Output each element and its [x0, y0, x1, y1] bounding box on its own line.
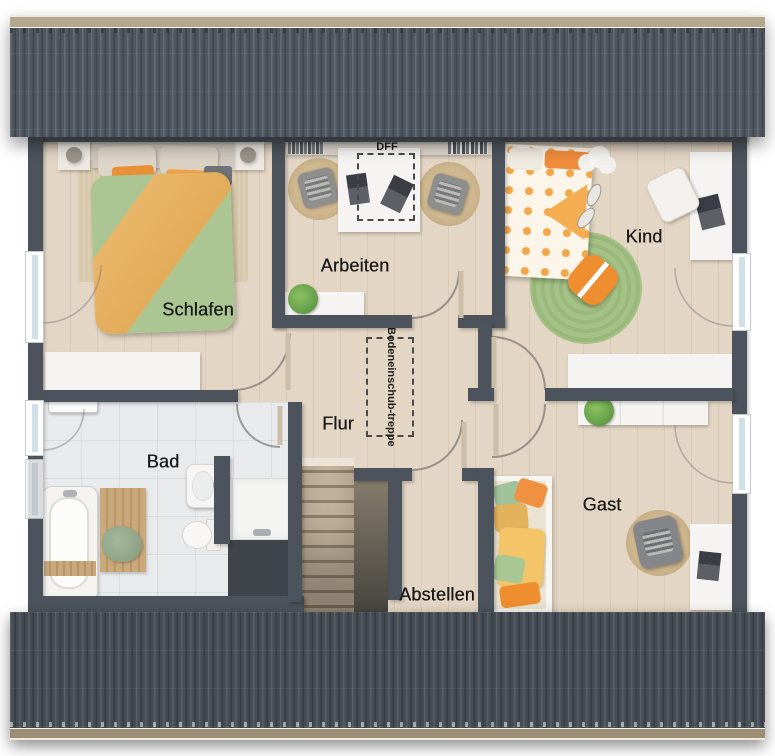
wall-kind-bottom-left: [468, 388, 494, 401]
roof-top: [10, 15, 765, 137]
toilet-bowl: [182, 521, 212, 549]
staircase: [302, 458, 354, 612]
roof-window-label: DFF: [363, 141, 411, 153]
attic-stair-label-line1: Bodeneinschub-: [383, 327, 397, 413]
plant: [288, 284, 318, 314]
guest-desk: [690, 524, 734, 610]
roof-gutter: [10, 728, 765, 740]
lamp-left: [66, 147, 82, 163]
exterior-wall-left: [28, 132, 43, 612]
window-glass: [32, 404, 38, 452]
knee-wall-void: [228, 540, 292, 600]
exterior-wall-bottom-left: [28, 596, 304, 612]
wall-abstellen-gast: [478, 468, 494, 612]
wall-arbeiten-kind: [492, 134, 505, 328]
room-label-kind: Kind: [626, 227, 663, 248]
wall-kind-left-lower: [478, 322, 492, 390]
chair-pillow: [433, 180, 462, 208]
wall-schlafen-arbeiten: [272, 134, 285, 328]
roof-rafter-ticks: [10, 28, 765, 33]
gutter-ticks: [10, 722, 765, 727]
wall-stairs-top: [354, 468, 412, 481]
basin-bowl: [192, 471, 214, 501]
window-glass: [739, 257, 745, 327]
daybed: [488, 476, 552, 614]
wall-abstellen-left: [388, 481, 402, 600]
room-label-bad: Bad: [147, 452, 180, 473]
window-glass: [32, 255, 38, 339]
room-label-flur: Flur: [322, 414, 354, 435]
window-glass: [739, 418, 745, 490]
attic-stair-hatch: Bodeneinschub- treppe: [366, 337, 414, 437]
roof-ridge: [10, 15, 765, 28]
lamp-right: [240, 147, 256, 163]
room-label-gast: Gast: [583, 495, 622, 516]
stair-landing-edge: [302, 458, 354, 466]
window-bad-lower: [25, 459, 44, 519]
attic-stair-label-line2: treppe: [383, 413, 397, 447]
kids-blanket-fold: [543, 182, 588, 240]
books: [448, 141, 488, 154]
bathtub: [42, 486, 98, 602]
books: [288, 141, 324, 154]
shower: [232, 478, 292, 540]
wall-arbeiten-bottom-left: [272, 315, 412, 328]
chair-pillow: [642, 527, 674, 556]
shower-faucet: [253, 529, 271, 536]
window-glass: [32, 463, 38, 515]
exterior-wall-right: [732, 132, 747, 612]
floor-plan: Schlafen DFF Arbeiten Kind Bodeneinschub…: [0, 0, 775, 756]
roof-window-dff: [357, 153, 415, 221]
kids-pillow-white: [508, 147, 543, 171]
room-label-arbeiten: Arbeiten: [321, 256, 390, 277]
window-bad-upper: [25, 400, 44, 456]
roof-bottom: [10, 612, 765, 740]
wall-bad-right: [288, 402, 302, 602]
kids-sideboard: [568, 354, 733, 390]
room-label-schlafen: Schlafen: [162, 300, 234, 321]
cloud-part: [598, 156, 616, 174]
pillow-green: [492, 554, 526, 585]
cloud-rug: [578, 146, 618, 176]
tub-caddy: [44, 561, 96, 576]
laptop: [697, 551, 722, 581]
towel: [102, 526, 142, 562]
window-kind: [732, 253, 751, 331]
wall-bad-stub: [214, 456, 230, 544]
laptop: [694, 194, 725, 231]
window-gast: [732, 414, 751, 494]
room-label-abstellen: Abstellen: [399, 585, 475, 606]
wall-kind-gast: [545, 388, 733, 401]
window-schlafen: [25, 251, 44, 343]
bedroom-sideboard: [45, 352, 200, 390]
chair-pillow: [304, 174, 333, 201]
wall-schlafen-bottom: [42, 390, 238, 402]
stairwell-void: [354, 471, 388, 612]
tub-faucet: [63, 490, 77, 497]
